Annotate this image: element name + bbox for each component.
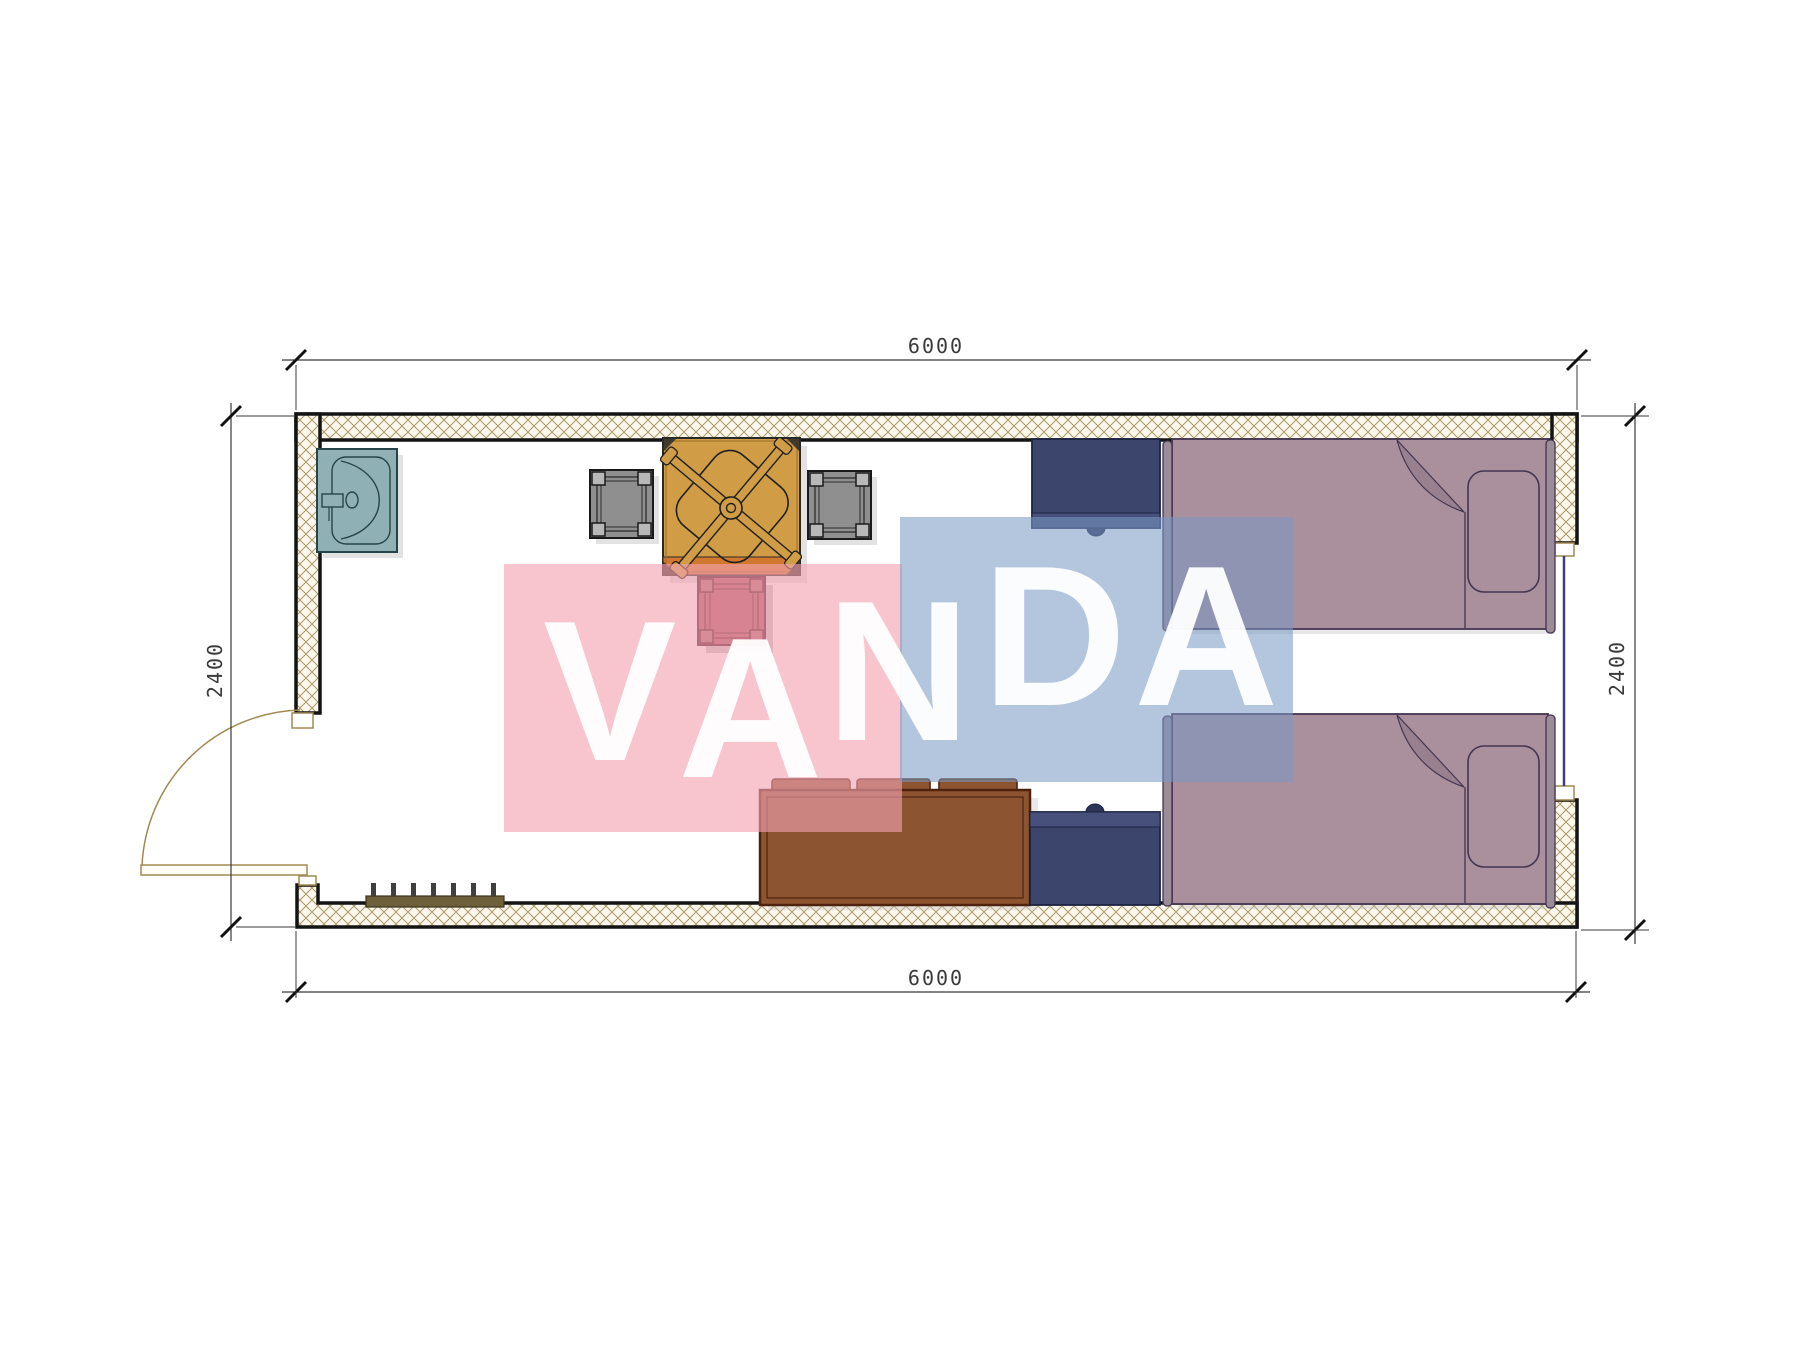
window-frame-bottom xyxy=(1555,786,1574,800)
dimension-bottom: 6000 xyxy=(282,931,1590,1002)
watermark-letter-v: V xyxy=(543,592,676,792)
window xyxy=(1555,543,1574,800)
dimension-bottom-label: 6000 xyxy=(908,966,964,990)
door-frame-bottom xyxy=(299,876,316,885)
nightstand-lower xyxy=(1030,804,1160,905)
right-wall-upper xyxy=(1552,414,1577,543)
drawer-handle xyxy=(1086,804,1104,812)
floor-plan-canvas: 6000 6000 2400 2400 V A N D A xyxy=(0,0,1800,1350)
watermark-letter-n: N xyxy=(826,572,970,772)
watermark-letter-d: D xyxy=(982,537,1126,737)
door-swing-arc xyxy=(142,710,300,866)
sink-faucet xyxy=(322,494,343,507)
dimension-top-label: 6000 xyxy=(908,334,964,358)
sink xyxy=(317,449,403,558)
dimension-right: 2400 xyxy=(1581,403,1649,944)
door-leaf xyxy=(141,865,307,875)
stool-right xyxy=(808,471,877,545)
stool-left xyxy=(590,470,659,544)
dimension-left-label: 2400 xyxy=(203,642,227,698)
shoe-rack xyxy=(366,883,504,907)
dimension-top: 6000 xyxy=(282,334,1591,410)
watermark-letter-a1: A xyxy=(678,609,822,809)
dimension-right-label: 2400 xyxy=(1605,640,1629,696)
top-wall xyxy=(296,414,1577,440)
door-frame-top xyxy=(292,713,313,728)
entry-door xyxy=(141,710,316,885)
window-frame-top xyxy=(1555,543,1574,556)
dimension-left: 2400 xyxy=(203,403,295,941)
watermark-letter-a2: A xyxy=(1134,537,1278,737)
